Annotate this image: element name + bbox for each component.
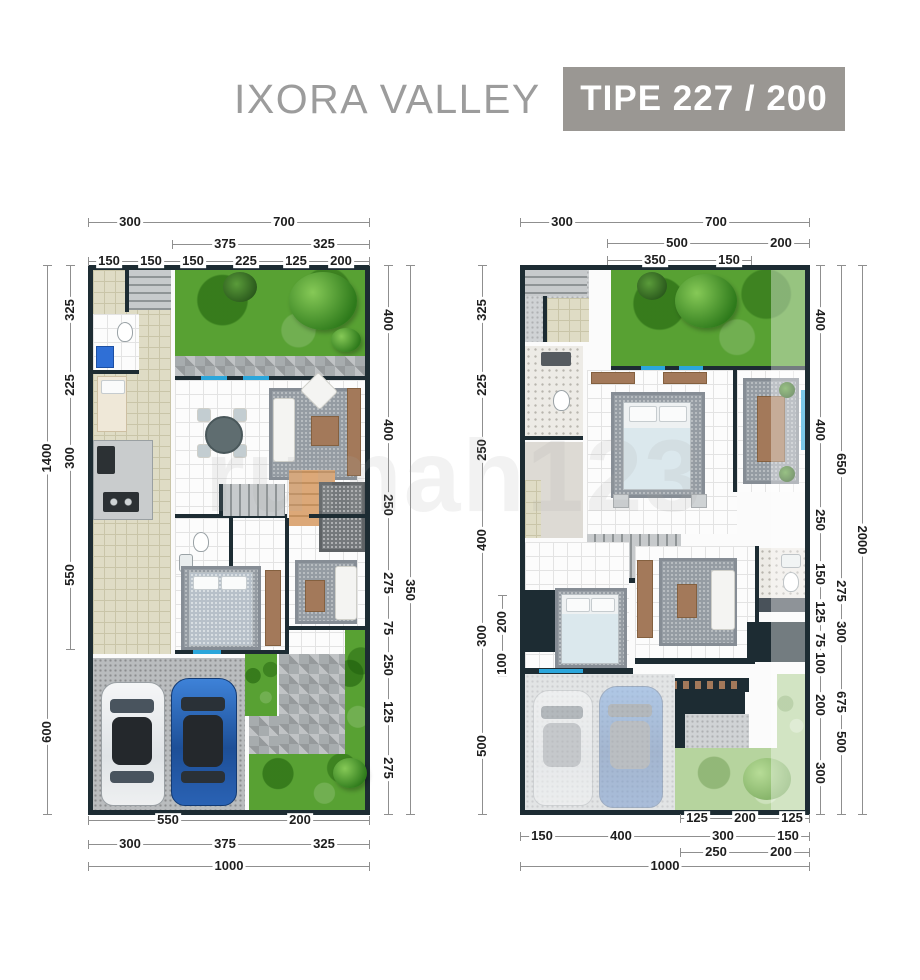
- dim-label: 225: [475, 372, 489, 398]
- dim-line: [388, 265, 389, 815]
- dim-label: 275: [381, 570, 395, 596]
- dim-label: 300: [710, 829, 736, 843]
- toilet: [553, 390, 570, 411]
- dim-label: 375: [212, 837, 238, 851]
- dim-label: 550: [155, 813, 181, 827]
- dim-label: 325: [63, 297, 77, 323]
- washer: [96, 346, 114, 368]
- type-badge: TIPE 227 / 200: [563, 67, 845, 131]
- landing-floor: [547, 298, 589, 342]
- dim-label: 325: [475, 297, 489, 323]
- dim-label: 400: [608, 829, 634, 843]
- palm: [637, 272, 667, 300]
- fridge: [97, 446, 115, 474]
- dim-label: 100: [495, 651, 509, 677]
- dim-label: 200: [768, 236, 794, 250]
- dining-table: [205, 416, 243, 454]
- dim-label: 200: [768, 845, 794, 859]
- pillow: [659, 406, 687, 422]
- closet-strip: [525, 480, 541, 538]
- coffee-table: [311, 416, 339, 446]
- sofa: [273, 398, 295, 462]
- dim-label: 350: [403, 577, 417, 603]
- dim-label: 600: [40, 719, 54, 745]
- brochure-page: IXORA VALLEY TIPE 227 / 200: [0, 0, 920, 980]
- dim-label: 100: [813, 650, 827, 676]
- dim-label: 200: [813, 692, 827, 718]
- right-fade-overlay: [771, 270, 805, 810]
- dim-label: 250: [381, 652, 395, 678]
- dim-label: 150: [716, 253, 742, 267]
- pillow: [193, 576, 219, 590]
- pillow: [629, 406, 657, 422]
- dim-label: 125: [684, 811, 710, 825]
- dim-label: 2000: [855, 524, 869, 557]
- dim-label: 275: [381, 755, 395, 781]
- dim-label: 300: [63, 445, 77, 471]
- tree: [289, 272, 357, 330]
- dim-label: 500: [475, 733, 489, 759]
- windshield: [110, 699, 154, 713]
- white-car: [101, 682, 165, 806]
- stairs-mid: [223, 484, 285, 516]
- blanket: [562, 614, 618, 663]
- dim-label: 650: [834, 451, 848, 477]
- palm: [223, 272, 257, 302]
- dim-label: 200: [732, 811, 758, 825]
- dim-label: 300: [834, 619, 848, 645]
- dim-label: 375: [212, 237, 238, 251]
- dim-label: 300: [813, 760, 827, 786]
- vanity: [541, 352, 571, 366]
- dim-label: 275: [834, 578, 848, 604]
- wall: [543, 296, 547, 342]
- dim-label: 250: [813, 507, 827, 533]
- toilet: [117, 322, 133, 342]
- dim-label: 300: [117, 837, 143, 851]
- dim-label: 700: [271, 215, 297, 229]
- dim-label: 125: [283, 254, 309, 268]
- dim-label: 200: [495, 609, 509, 635]
- dining-chair: [197, 408, 211, 422]
- dim-label: 350: [642, 253, 668, 267]
- dim-label: 150: [138, 254, 164, 268]
- dim-label: 400: [381, 307, 395, 333]
- side-table: [305, 580, 325, 612]
- rear-window: [110, 771, 154, 783]
- wardrobe: [265, 570, 281, 646]
- blue-car: [171, 678, 237, 806]
- window: [193, 650, 221, 654]
- dim-line: [172, 244, 370, 245]
- dim-label: 75: [381, 619, 395, 637]
- dim-label: 400: [813, 417, 827, 443]
- wall: [93, 370, 139, 374]
- dim-label: 225: [233, 254, 259, 268]
- car-roof: [112, 717, 152, 765]
- sofa: [335, 566, 357, 620]
- wall: [219, 484, 223, 516]
- sofa: [711, 570, 735, 630]
- floorplan-ground: [88, 265, 370, 815]
- stairs-upper: [525, 270, 587, 296]
- wall: [309, 514, 365, 518]
- nightstand: [691, 494, 707, 508]
- blanket: [624, 428, 690, 489]
- dim-label: 675: [834, 689, 848, 715]
- dim-label: 125: [381, 699, 395, 725]
- dim-label: 1000: [649, 859, 682, 873]
- pillow: [566, 598, 590, 612]
- dim-label: 250: [381, 492, 395, 518]
- type-badge-label: TIPE 227 / 200: [580, 79, 827, 119]
- dim-label: 150: [529, 829, 555, 843]
- dim-label: 150: [775, 829, 801, 843]
- path-pavers: [279, 654, 345, 754]
- shrub: [333, 758, 367, 788]
- wardrobe: [591, 372, 635, 384]
- desk-strip: [637, 560, 653, 638]
- floorplan-upper: [520, 265, 810, 815]
- dim-label: 300: [475, 623, 489, 649]
- dim-label: 150: [180, 254, 206, 268]
- tree: [675, 274, 737, 328]
- dim-label: 400: [381, 417, 395, 443]
- dim-line: [410, 265, 411, 815]
- wall: [125, 270, 129, 312]
- dim-label: 1400: [40, 442, 54, 475]
- dim-label: 250: [703, 845, 729, 859]
- dim-label: 75: [813, 631, 827, 649]
- terrace-pavers: [175, 356, 365, 376]
- wall: [285, 518, 289, 654]
- void-overlay: [525, 674, 675, 810]
- garden-patch: [245, 654, 277, 716]
- tv-console: [347, 388, 361, 476]
- dim-label: 125: [813, 599, 827, 625]
- windshield: [181, 697, 225, 711]
- page-title: IXORA VALLEY: [234, 76, 541, 123]
- car-roof: [183, 715, 223, 767]
- pillow: [221, 576, 247, 590]
- stairs-top: [129, 270, 171, 310]
- nightstand: [613, 494, 629, 508]
- stove: [103, 492, 139, 512]
- wardrobe: [663, 372, 707, 384]
- dim-line: [520, 836, 810, 837]
- table: [677, 584, 697, 618]
- dim-label: 150: [96, 254, 122, 268]
- dim-label: 325: [311, 837, 337, 851]
- pillow: [591, 598, 615, 612]
- rear-window: [181, 771, 225, 783]
- dim-label: 500: [834, 729, 848, 755]
- dim-line: [820, 265, 821, 815]
- dim-label: 325: [311, 237, 337, 251]
- path-pavers: [249, 716, 279, 754]
- dim-line: [88, 820, 370, 821]
- dim-label: 400: [475, 527, 489, 553]
- side-garden: [345, 630, 365, 754]
- window: [539, 669, 583, 673]
- dim-label: 300: [117, 215, 143, 229]
- dim-label: 700: [703, 215, 729, 229]
- dim-label: 150: [813, 561, 827, 587]
- dim-label: 200: [287, 813, 313, 827]
- shrub: [331, 328, 361, 352]
- dim-label: 300: [549, 215, 575, 229]
- pillow: [101, 380, 125, 394]
- dim-label: 125: [779, 811, 805, 825]
- dim-label: 500: [664, 236, 690, 250]
- dim-label: 550: [63, 562, 77, 588]
- dim-label: 400: [813, 307, 827, 333]
- wall: [635, 658, 755, 664]
- dim-label: 250: [475, 437, 489, 463]
- wall: [525, 436, 583, 440]
- dim-label: 1000: [213, 859, 246, 873]
- dim-label: 225: [63, 372, 77, 398]
- toilet: [193, 532, 209, 552]
- dim-label: 200: [328, 254, 354, 268]
